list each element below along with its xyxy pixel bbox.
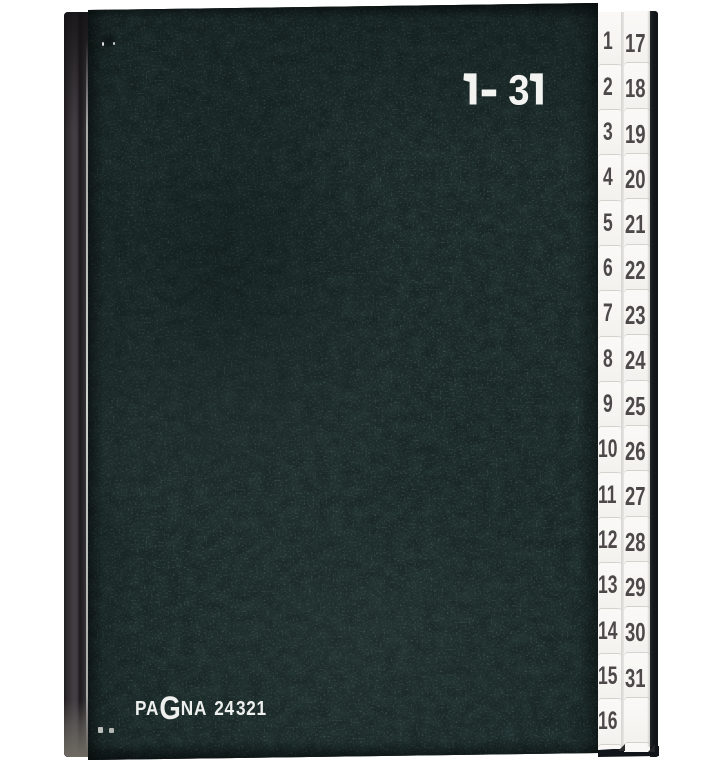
svg-text:3: 3 <box>508 70 529 112</box>
